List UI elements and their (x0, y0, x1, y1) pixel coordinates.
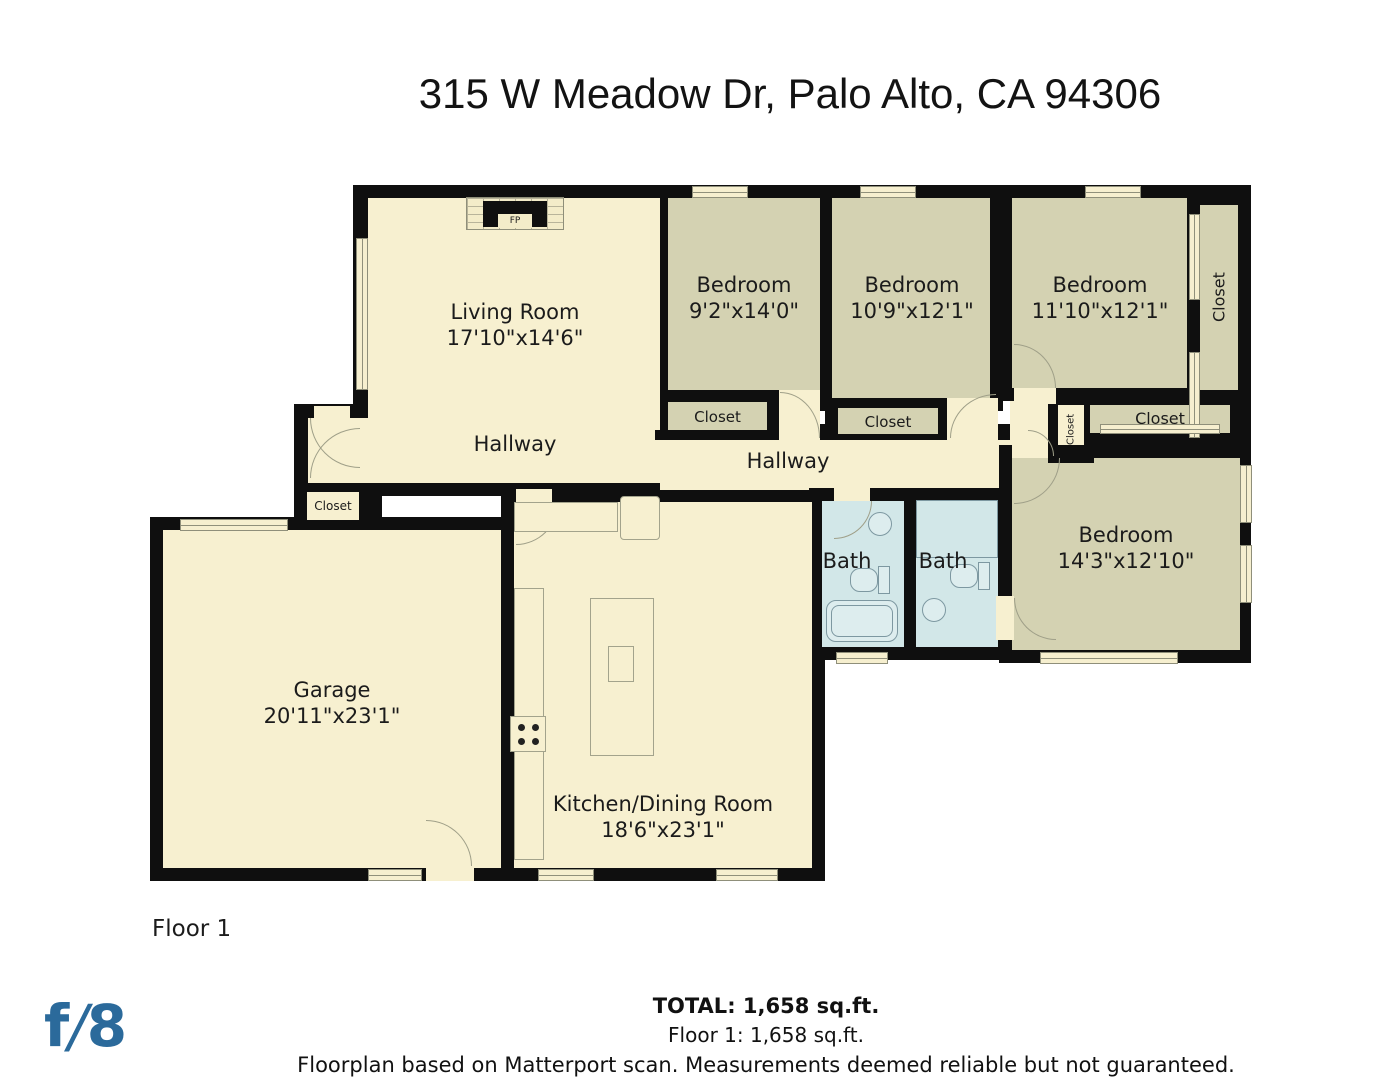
label-closet-entry: Closet (307, 492, 359, 520)
window (692, 186, 748, 198)
room-name: Living Room (451, 299, 580, 325)
window (368, 869, 422, 881)
room-name: Bedroom (1053, 272, 1148, 298)
f8-logo: f/8 (44, 992, 125, 1060)
label-hallway-left: Hallway (420, 431, 610, 457)
floor-label: Floor 1 (152, 916, 231, 942)
toilet-tank (978, 562, 990, 590)
label-bedroom-2: Bedroom 10'9"x12'1" (822, 270, 1002, 326)
window (538, 869, 594, 881)
window (836, 652, 888, 664)
door-opening (516, 489, 552, 503)
door-opening (834, 488, 870, 501)
page-title: 315 W Meadow Dr, Palo Alto, CA 94306 (200, 70, 1380, 118)
logo-f: f (44, 992, 67, 1060)
label-closet-bedroom-1: Closet (668, 402, 767, 432)
label-closet-bedroom-4: Closet (1090, 403, 1230, 433)
label-garage: Garage 20'11"x23'1" (202, 674, 462, 732)
floor1-sqft: Floor 1: 1,658 sq.ft. (134, 1023, 1398, 1047)
footer: TOTAL: 1,658 sq.ft. Floor 1: 1,658 sq.ft… (134, 994, 1398, 1077)
label-hallway-center: Hallway (700, 448, 876, 474)
sink-icon (922, 598, 946, 622)
window (716, 869, 778, 881)
door-opening (426, 868, 474, 881)
room-dims: 14'3"x12'10" (1058, 548, 1195, 574)
room-dims: 10'9"x12'1" (850, 298, 973, 324)
label-closet-bedroom-3-side: Closet (1200, 205, 1238, 390)
bathtub-icon (826, 600, 898, 642)
label-closet-hall-small: Closet (1056, 403, 1086, 455)
room-name: Kitchen/Dining Room (553, 791, 773, 817)
window (1040, 652, 1178, 664)
logo-slash: / (67, 992, 87, 1060)
window (180, 519, 288, 531)
stove-icon (510, 716, 546, 752)
logo-eight: 8 (87, 992, 125, 1060)
total-sqft: TOTAL: 1,658 sq.ft. (134, 994, 1398, 1018)
door-opening (996, 596, 1014, 640)
label-bedroom-3: Bedroom 11'10"x12'1" (1008, 270, 1192, 326)
stove-burners (518, 724, 525, 731)
room-dims: 9'2"x14'0" (689, 298, 799, 324)
room-name: Bedroom (865, 272, 960, 298)
room-name: Garage (294, 677, 371, 703)
label-bath-left: Bath (812, 549, 882, 573)
room-dims: 18'6"x23'1" (601, 817, 724, 843)
sink-icon (868, 512, 892, 536)
door-opening (1014, 388, 1056, 404)
fridge-icon (620, 496, 660, 540)
label-kitchen-dining: Kitchen/Dining Room 18'6"x23'1" (518, 788, 808, 846)
room-dims: 20'11"x23'1" (264, 703, 401, 729)
label-living-room: Living Room 17'10"x14'6" (380, 296, 650, 354)
kitchen-counter (514, 502, 618, 532)
disclaimer-text: Floorplan based on Matterport scan. Meas… (134, 1053, 1398, 1077)
floorplan-page: 315 W Meadow Dr, Palo Alto, CA 94306 (0, 0, 1398, 1080)
label-bedroom-1: Bedroom 9'2"x14'0" (654, 270, 834, 326)
fireplace-label: FP (498, 214, 532, 228)
label-bedroom-4: Bedroom 14'3"x12'10" (1016, 520, 1236, 576)
window (1240, 465, 1252, 523)
window (1240, 545, 1252, 603)
room-name: Bedroom (697, 272, 792, 298)
window (356, 238, 368, 390)
room-dims: 11'10"x12'1" (1032, 298, 1169, 324)
label-bath-right: Bath (908, 549, 978, 573)
room-dims: 17'10"x14'6" (447, 325, 584, 351)
room-name: Bedroom (1079, 522, 1174, 548)
window (1085, 186, 1141, 198)
label-closet-bedroom-2: Closet (838, 408, 938, 436)
window (860, 186, 916, 198)
wall-segment (809, 488, 834, 501)
bathtub-inner (831, 605, 893, 637)
island-sink-icon (608, 646, 634, 682)
